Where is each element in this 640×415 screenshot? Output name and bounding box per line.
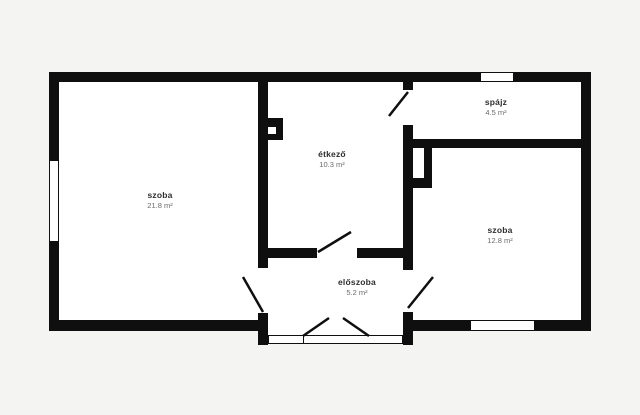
- door-swing-dining: [318, 232, 351, 252]
- room-label-etkezo: étkező 10.3 m²: [318, 150, 346, 169]
- room-name: szoba: [147, 191, 172, 201]
- door-swing-layer: [0, 0, 640, 415]
- room-name: előszoba: [338, 278, 376, 288]
- room-label-eloszoba: előszoba 5.2 m²: [338, 278, 376, 297]
- room-area: 4.5 m²: [485, 109, 507, 118]
- door-swing-pantry: [389, 92, 408, 116]
- room-name: szoba: [487, 226, 512, 236]
- floor-plan: szoba 21.8 m² étkező 10.3 m² spájz 4.5 m…: [0, 0, 640, 415]
- door-swing-right-room: [408, 277, 433, 308]
- room-name: étkező: [318, 150, 346, 160]
- room-label-szoba-left: szoba 21.8 m²: [147, 191, 172, 210]
- door-swing-entrance-right: [343, 318, 369, 336]
- door-swing-left-room: [243, 277, 263, 312]
- room-name: spájz: [485, 98, 507, 108]
- room-area: 5.2 m²: [338, 289, 376, 298]
- room-label-szoba-right: szoba 12.8 m²: [487, 226, 512, 245]
- room-label-spajz: spájz 4.5 m²: [485, 98, 507, 117]
- room-area: 21.8 m²: [147, 202, 172, 211]
- room-area: 12.8 m²: [487, 237, 512, 246]
- door-swing-entrance-left: [303, 318, 329, 336]
- room-area: 10.3 m²: [318, 161, 346, 170]
